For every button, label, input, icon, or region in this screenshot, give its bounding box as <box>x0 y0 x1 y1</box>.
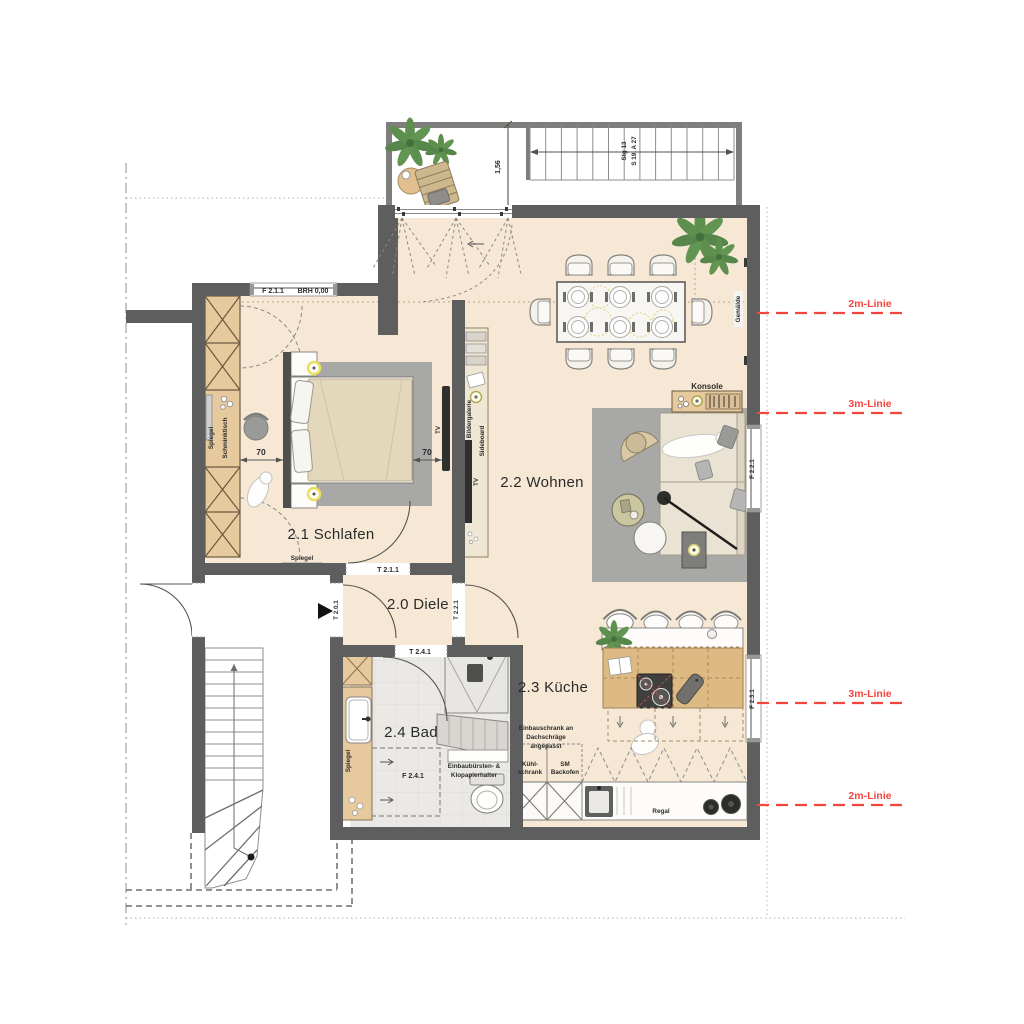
label-f221: F 2.2.1 <box>749 459 756 479</box>
label-t221: T 2.2.1 <box>453 600 460 620</box>
label-bildergalerie: Bildergalerie <box>466 399 473 438</box>
label-2m-lower: 2m-Linie <box>848 790 891 802</box>
label-room-wohnen: 2.2 Wohnen <box>500 474 584 491</box>
lounge-chair <box>414 161 459 211</box>
stairs-label: S 19, A 27 <box>631 136 638 166</box>
shower-head <box>467 664 483 682</box>
balcony-width-label: 1,56 <box>495 160 502 174</box>
label-einbauschrank: Einbauschrank an <box>519 725 573 732</box>
shelf <box>448 750 508 762</box>
label-spiegel-wardrobe: Spiegel <box>208 427 215 450</box>
balcony-wall <box>736 122 742 208</box>
dim-70-label: 70 <box>256 447 266 457</box>
label-t241: T 2.4.1 <box>409 649 431 656</box>
label-sideboard: Sideboard <box>479 425 486 456</box>
stair-walk-line <box>231 664 255 861</box>
label-room-diele: 2.0 Diele <box>387 596 449 613</box>
toilet <box>470 774 504 813</box>
label-spiegel-wall: Spiegel <box>291 555 314 562</box>
label-tv-bedroom: TV <box>435 425 442 434</box>
door-opening-exterior <box>192 583 205 637</box>
shower <box>445 652 508 713</box>
label-f241: F 2.4.1 <box>402 773 424 780</box>
cooktop <box>637 674 672 708</box>
label-gemaelde: Gemälde <box>735 295 742 322</box>
label-room-schlafen: 2.1 Schlafen <box>288 526 375 543</box>
label-f231: F 2.3.1 <box>749 689 756 709</box>
konsole-table <box>672 391 742 412</box>
label-2m-upper: 2m-Linie <box>848 298 891 310</box>
person-figure-head <box>260 472 272 484</box>
label-halter: Einbaubürsten- & <box>448 763 501 770</box>
height-lines: 2m-Linie 3m-Linie 3m-Linie 2m-Linie <box>757 298 903 805</box>
plant-icon <box>425 134 458 166</box>
balcony-width-dimension: 1,56 <box>495 121 512 213</box>
label-konsole: Konsole <box>691 382 723 391</box>
label-regal: Regal <box>652 808 669 815</box>
label-t201: T 2.0.1 <box>333 600 340 620</box>
coffee-table-white <box>634 522 666 554</box>
label-einbauschrank: Dachschräge <box>526 734 566 741</box>
label-kuehlschrank: Kühl- <box>522 761 538 768</box>
label-3m-lower: 3m-Linie <box>848 688 891 700</box>
label-backofen: SM <box>560 761 569 768</box>
balcony-door-opening <box>395 205 512 218</box>
bedroom-tv <box>442 386 450 471</box>
balcony-wall <box>386 122 742 128</box>
label-halter: Klopapierhalter <box>451 772 498 779</box>
open-book <box>608 657 632 676</box>
exterior-door-arc <box>140 584 192 636</box>
pillow <box>291 429 313 472</box>
balcony: Stg 13 S 19, A 27 1,56 <box>384 118 742 214</box>
sideboard-tv <box>465 440 472 523</box>
label-f211: F 2.1.1 <box>262 288 284 295</box>
label-3m-upper: 3m-Linie <box>848 398 891 410</box>
vanity-stool <box>244 416 268 440</box>
floor-plan-svg: Stg 13 S 19, A 27 1,56 <box>0 0 1024 1024</box>
label-brh: BRH 0,00 <box>298 288 329 295</box>
label-room-bad: 2.4 Bad <box>384 724 438 741</box>
room-diele-floor <box>343 575 467 657</box>
label-room-kueche: 2.3 Küche <box>518 679 588 696</box>
bowl <box>708 630 717 639</box>
label-t211: T 2.1.1 <box>377 567 399 574</box>
dim-70-label: 70 <box>422 447 432 457</box>
balcony-table-cup <box>402 171 410 179</box>
stairs-label: Stg 13 <box>621 141 628 160</box>
label-tv-sideboard: TV <box>473 477 480 486</box>
label-spiegel-bad: Spiegel <box>345 750 352 773</box>
balcony-wall <box>386 122 392 212</box>
label-schminktisch: Schminktisch <box>222 417 229 458</box>
balcony-divider-wall <box>526 122 530 180</box>
label-backofen: Backofen <box>551 769 579 776</box>
top-stairs-dimension: Stg 13 S 19, A 27 <box>530 136 734 166</box>
label-einbauschrank: angepasst <box>530 743 562 750</box>
label-kuehlschrank: schrank <box>518 769 543 776</box>
bed-headboard <box>283 352 291 508</box>
